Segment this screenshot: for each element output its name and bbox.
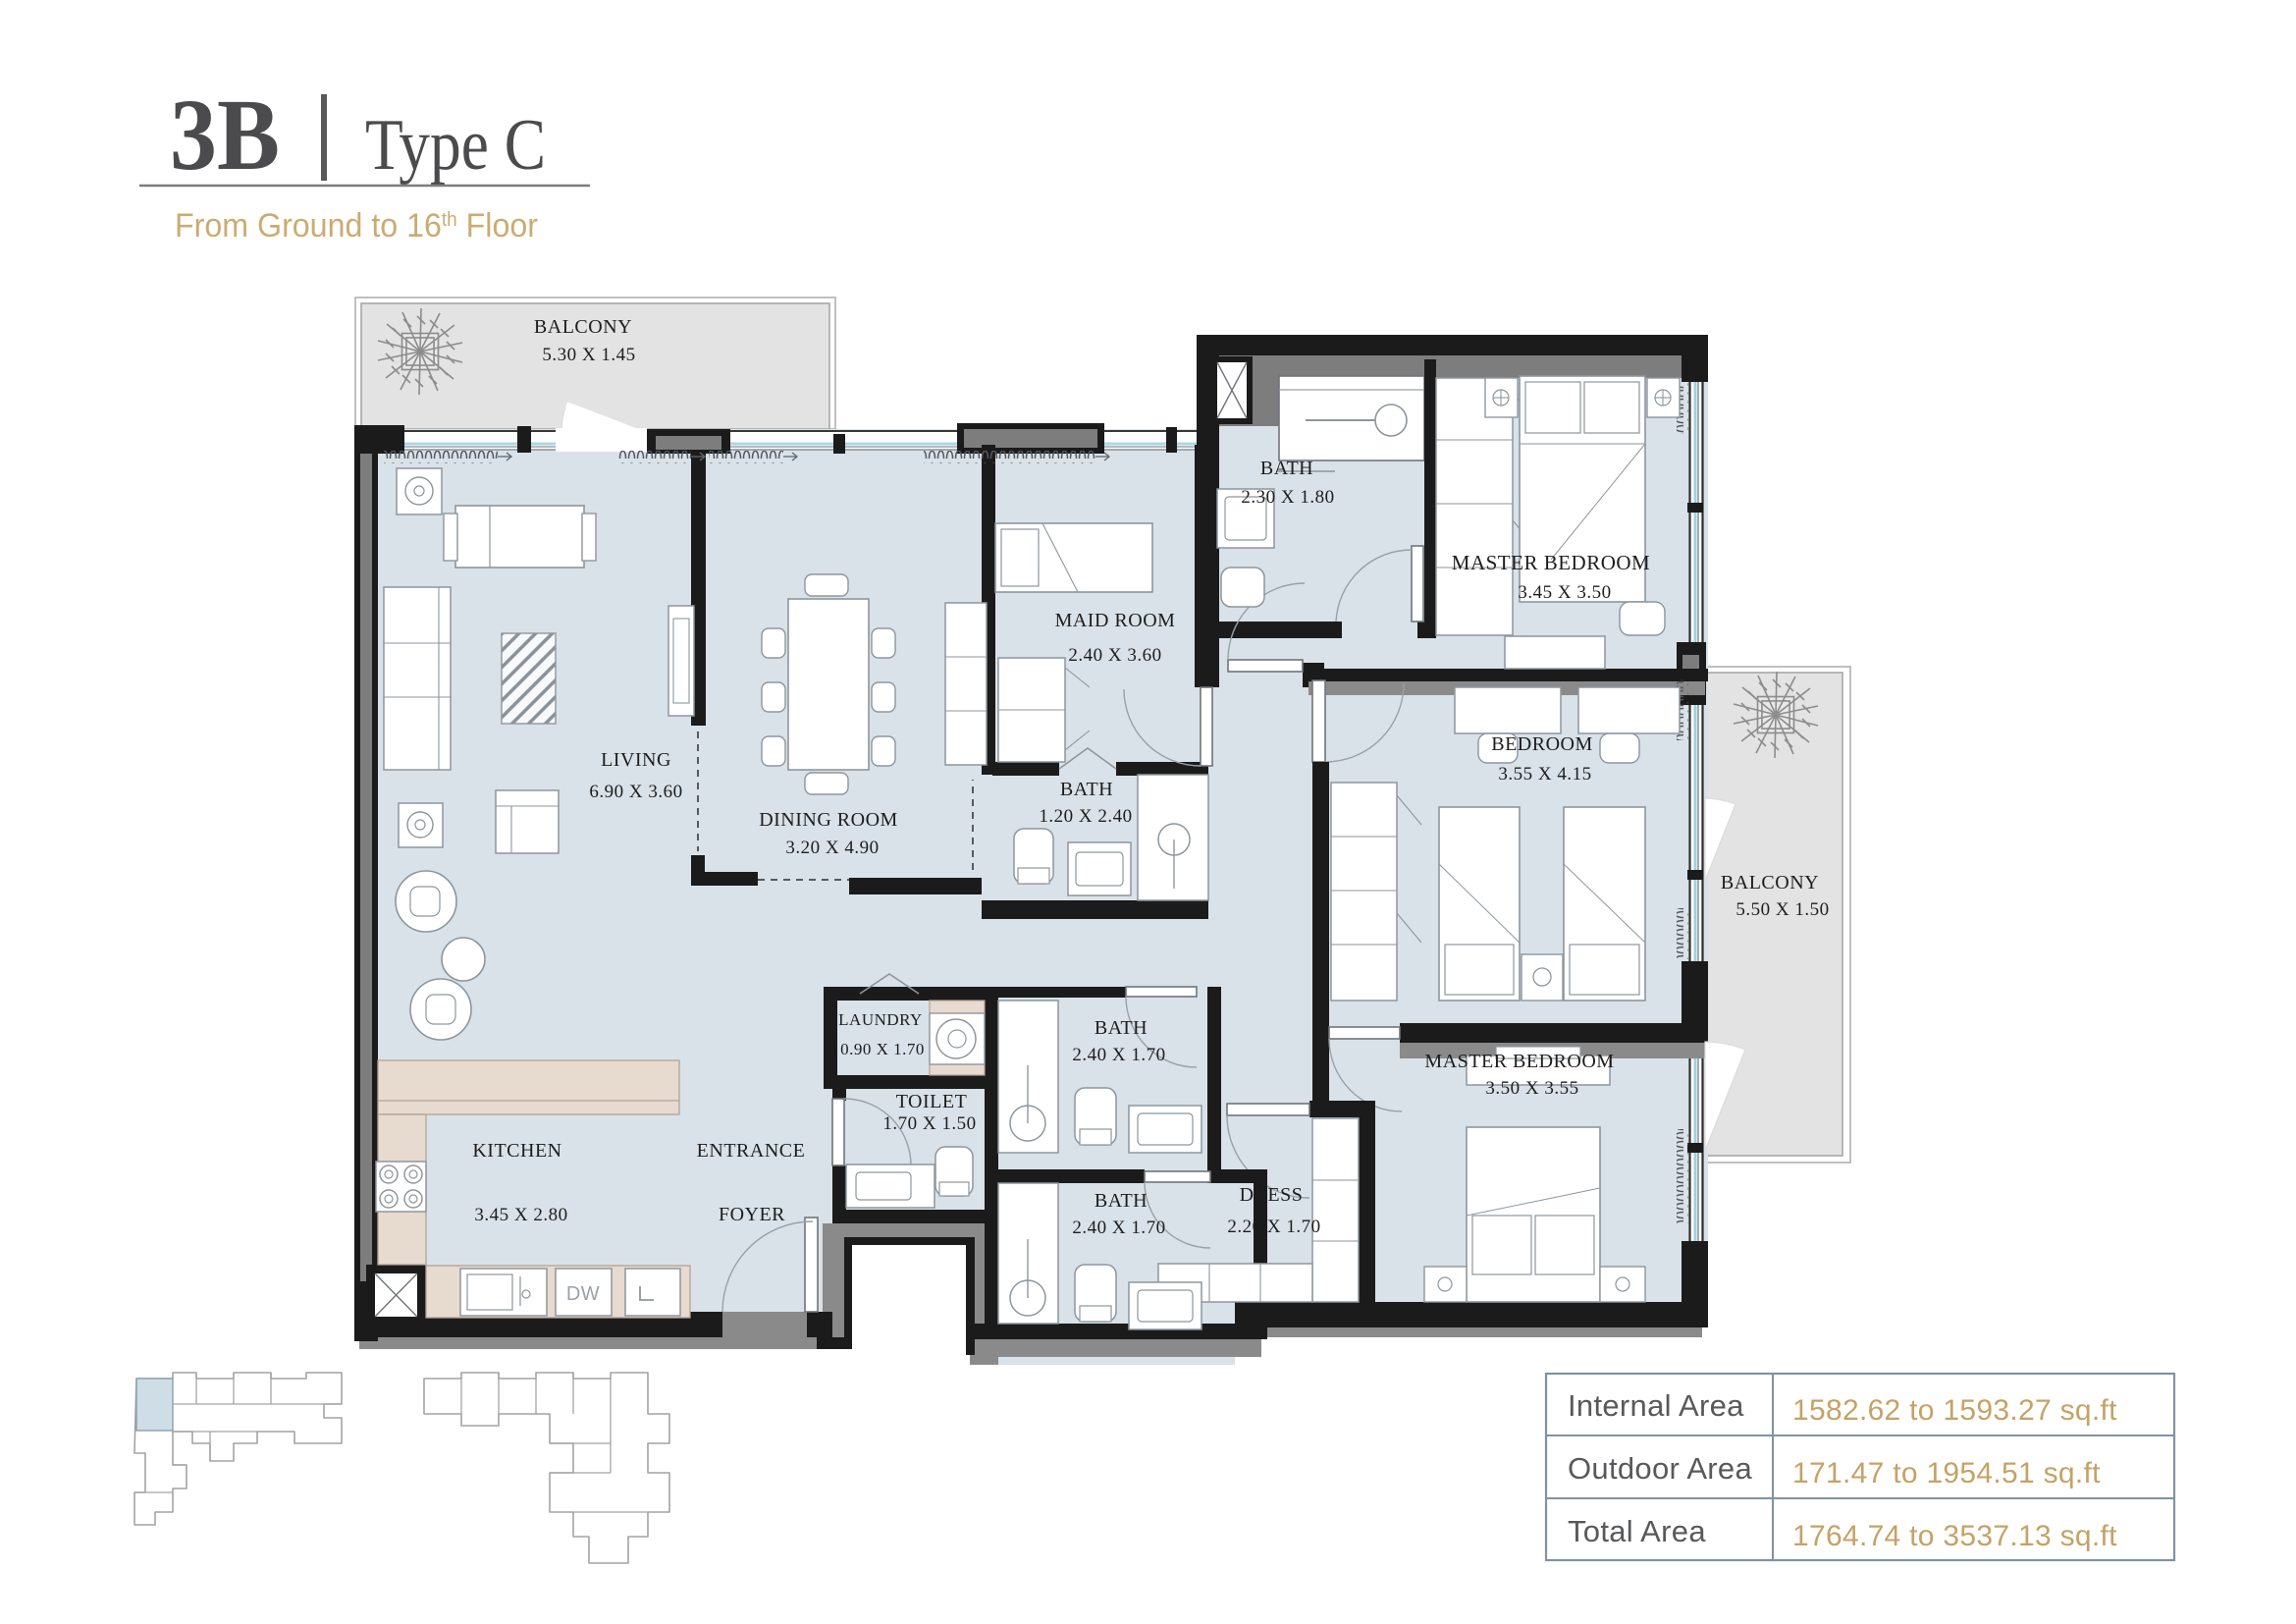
svg-text:0.90 X 1.70: 0.90 X 1.70 <box>840 1040 925 1058</box>
svg-text:BATH: BATH <box>1060 779 1113 800</box>
svg-text:BALCONY: BALCONY <box>1721 872 1819 893</box>
svg-text:2.30 X 1.80: 2.30 X 1.80 <box>1241 487 1334 508</box>
svg-text:1.70 X 1.50: 1.70 X 1.50 <box>882 1113 976 1134</box>
svg-text:3.45 X 2.80: 3.45 X 2.80 <box>474 1205 567 1225</box>
svg-text:3.50 X 3.55: 3.50 X 3.55 <box>1485 1078 1578 1099</box>
svg-text:2.40 X 1.70: 2.40 X 1.70 <box>1072 1045 1165 1065</box>
svg-text:TOILET: TOILET <box>896 1091 968 1112</box>
svg-text:6.90 X 3.60: 6.90 X 3.60 <box>589 782 682 802</box>
svg-text:5.50 X 1.50: 5.50 X 1.50 <box>1735 899 1829 920</box>
svg-text:DINING ROOM: DINING ROOM <box>759 809 898 831</box>
svg-text:MASTER BEDROOM: MASTER BEDROOM <box>1452 551 1650 574</box>
svg-text:LIVING: LIVING <box>601 749 671 771</box>
svg-text:5.30 X 1.45: 5.30 X 1.45 <box>542 345 635 365</box>
svg-text:BATH: BATH <box>1095 1017 1148 1039</box>
svg-text:BEDROOM: BEDROOM <box>1491 733 1593 755</box>
svg-text:BATH: BATH <box>1095 1190 1148 1212</box>
svg-text:LAUNDRY: LAUNDRY <box>838 1010 923 1029</box>
svg-text:171.47 to 1954.51 sq.ft: 171.47 to 1954.51 sq.ft <box>1792 1457 2101 1489</box>
svg-text:KITCHEN: KITCHEN <box>472 1140 561 1162</box>
svg-text:Outdoor Area: Outdoor Area <box>1568 1451 1752 1486</box>
svg-text:MAID ROOM: MAID ROOM <box>1055 610 1176 631</box>
svg-text:Type C: Type C <box>365 105 546 186</box>
svg-text:1582.62 to 1593.27 sq.ft: 1582.62 to 1593.27 sq.ft <box>1792 1394 2117 1427</box>
svg-text:ENTRANCE: ENTRANCE <box>697 1140 806 1162</box>
svg-text:MASTER BEDROOM: MASTER BEDROOM <box>1424 1051 1614 1072</box>
svg-text:DRESS: DRESS <box>1240 1184 1304 1206</box>
svg-text:FOYER: FOYER <box>719 1204 785 1225</box>
svg-text:From Ground to 16th Floor: From Ground to 16th Floor <box>175 207 538 244</box>
svg-text:2.40 X 3.60: 2.40 X 3.60 <box>1068 645 1161 666</box>
svg-text:3B: 3B <box>170 79 280 191</box>
svg-text:3.45 X 3.50: 3.45 X 3.50 <box>1518 582 1611 603</box>
svg-text:3.55 X 4.15: 3.55 X 4.15 <box>1498 764 1591 785</box>
svg-text:Internal Area: Internal Area <box>1568 1388 1744 1423</box>
svg-text:DW: DW <box>566 1283 600 1305</box>
svg-text:Total Area: Total Area <box>1568 1514 1706 1548</box>
svg-text:BATH: BATH <box>1260 458 1313 479</box>
svg-text:1764.74 to 3537.13 sq.ft: 1764.74 to 3537.13 sq.ft <box>1792 1520 2117 1552</box>
svg-text:2.40 X 1.70: 2.40 X 1.70 <box>1072 1218 1165 1238</box>
svg-text:BALCONY: BALCONY <box>534 316 632 338</box>
svg-text:1.20 X 2.40: 1.20 X 2.40 <box>1039 806 1132 827</box>
svg-text:2.20 X 1.70: 2.20 X 1.70 <box>1227 1217 1320 1237</box>
svg-text:3.20 X 4.90: 3.20 X 4.90 <box>785 838 879 858</box>
